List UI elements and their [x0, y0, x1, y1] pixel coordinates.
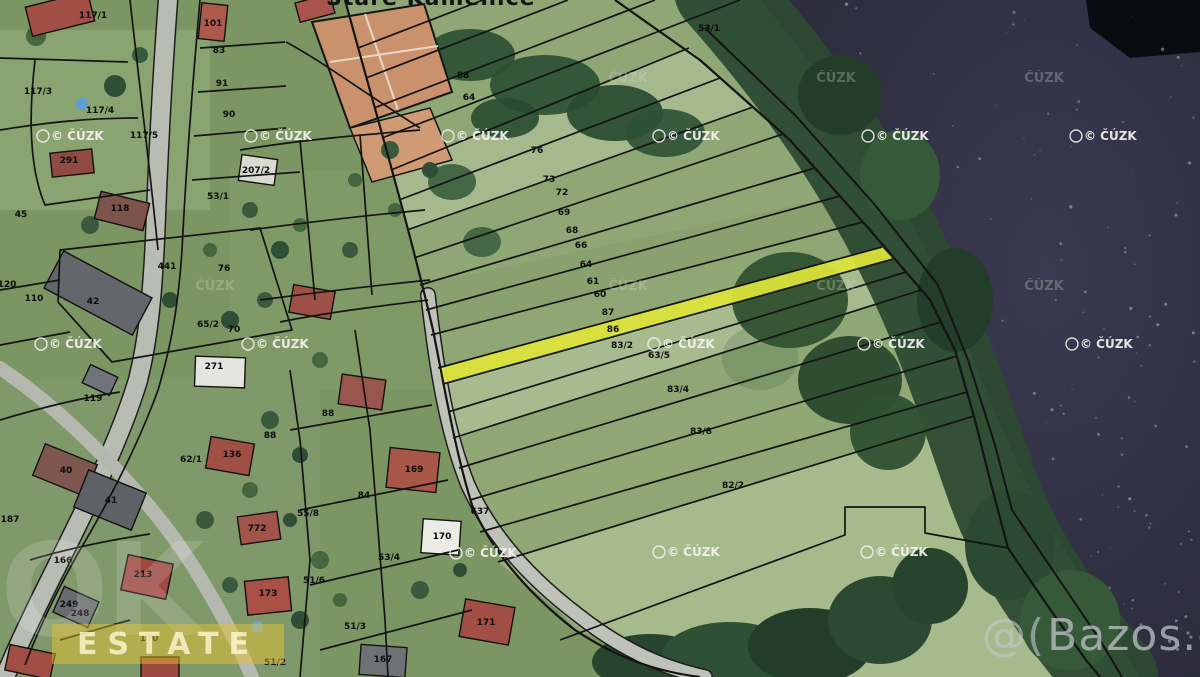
- bazos-watermark: @(Bazos.cz: [982, 610, 1200, 661]
- parcel-number-label: 772: [248, 524, 267, 534]
- parcel-number-label: 82/2: [722, 481, 744, 491]
- cuzk-faint-watermark: ČÚZK: [195, 278, 236, 294]
- svg-text:© ČÚZK: © ČÚZK: [667, 128, 720, 143]
- parcel-number-label: 70: [228, 325, 241, 335]
- agency-watermark-text: ESTATE: [77, 627, 259, 662]
- parcel-number-label: 72: [556, 188, 569, 198]
- parcel-number-label: 41: [105, 496, 118, 506]
- parcel-number-label: 117/1: [79, 11, 107, 21]
- place-label: Staré Kamenice: [326, 0, 536, 11]
- parcel-number-label: 76: [218, 264, 231, 274]
- parcel-number-label: 169: [405, 465, 424, 475]
- parcel-number-label: 73: [543, 175, 556, 185]
- parcel-number-label: 118: [111, 204, 130, 214]
- svg-text:© ČÚZK: © ČÚZK: [49, 336, 102, 351]
- cadastral-map-image[interactable]: 117/11018391117/3117/490117/5291207/2451…: [0, 0, 1200, 677]
- parcel-number-label: 441: [158, 262, 177, 272]
- bazos-watermark-text: Bazos.cz: [1047, 610, 1200, 661]
- parcel-number-label: 173: [259, 589, 278, 599]
- cuzk-faint-watermark: ČÚZK: [608, 70, 649, 86]
- parcel-number-label: 51/3: [344, 622, 366, 632]
- agency-watermark-band: ESTATE: [52, 624, 284, 664]
- parcel-number-label: 84: [358, 491, 371, 501]
- house-roof: [194, 356, 245, 388]
- parcel-number-label: 88: [457, 71, 470, 81]
- parcel-number-label: 87: [602, 308, 615, 318]
- parcel-number-label: 271: [205, 362, 224, 372]
- parcel-number-label: 170: [433, 532, 452, 542]
- parcel-number-label: 291: [60, 156, 79, 166]
- parcel-number-label: 119: [84, 394, 103, 404]
- parcel-number-label: 53/4: [378, 553, 400, 563]
- parcel-number-label: 51/6: [303, 576, 325, 586]
- parcel-number-label: 110: [25, 294, 44, 304]
- parcel-number-label: 64: [580, 260, 593, 270]
- parcel-number-label: 68: [566, 226, 579, 236]
- parcel-number-label: 90: [223, 110, 236, 120]
- svg-text:© ČÚZK: © ČÚZK: [1084, 128, 1137, 143]
- parcel-number-label: 42: [87, 297, 100, 307]
- parcel-number-label: 63/5: [648, 351, 670, 361]
- parcel-number-label: 76: [531, 146, 544, 156]
- cuzk-faint-watermark: ČÚZK: [1024, 278, 1065, 294]
- parcel-number-label: 120: [0, 280, 16, 290]
- svg-text:© ČÚZK: © ČÚZK: [662, 336, 715, 351]
- parcel-number-label: 207/2: [242, 166, 270, 176]
- parcel-number-label: 83/4: [667, 385, 689, 395]
- parcel-number-label: 64: [463, 93, 476, 103]
- parcel-number-label: 53/1: [207, 192, 229, 202]
- parcel-number-label: 136: [223, 450, 242, 460]
- svg-text:© ČÚZK: © ČÚZK: [667, 544, 720, 559]
- svg-text:© ČÚZK: © ČÚZK: [259, 128, 312, 143]
- parcel-number-label: 117/3: [24, 87, 52, 97]
- parcel-number-label: 66: [575, 241, 588, 251]
- parcel-number-label: 60: [594, 290, 607, 300]
- parcel-number-label: 117/5: [130, 131, 158, 141]
- svg-text:© ČÚZK: © ČÚZK: [1080, 336, 1133, 351]
- parcel-number-label: 61: [587, 277, 600, 287]
- parcel-number-label: 117/4: [86, 106, 114, 116]
- parcel-number-label: 91: [216, 79, 229, 89]
- svg-text:© ČÚZK: © ČÚZK: [456, 128, 509, 143]
- parcel-number-label: 171: [477, 618, 496, 628]
- cuzk-faint-watermark: ČÚZK: [816, 70, 857, 86]
- svg-text:© ČÚZK: © ČÚZK: [464, 545, 517, 560]
- parcel-number-label: 83: [213, 46, 226, 56]
- cuzk-faint-watermark: ČÚZK: [816, 278, 857, 294]
- parcel-number-label: 83/2: [611, 341, 633, 351]
- cuzk-faint-watermark: ČÚZK: [608, 278, 649, 294]
- parcel-number-label: 101: [204, 19, 223, 29]
- svg-text:© ČÚZK: © ČÚZK: [256, 336, 309, 351]
- parcel-number-label: 62/1: [180, 455, 202, 465]
- parcel-number-label: 637: [471, 507, 490, 517]
- svg-text:© ČÚZK: © ČÚZK: [876, 128, 929, 143]
- parcel-number-label: 167: [374, 655, 393, 665]
- cuzk-faint-watermark: ČÚZK: [1024, 70, 1065, 86]
- parcel-number-label: 53/1: [698, 24, 720, 34]
- parcel-number-label: 55/8: [297, 509, 319, 519]
- parcel-number-label: 69: [558, 208, 571, 218]
- parcel-number-label: 86: [607, 325, 620, 335]
- parcel-number-label: 45: [15, 210, 28, 220]
- svg-text:© ČÚZK: © ČÚZK: [51, 128, 104, 143]
- bazos-logo-icon: @(: [982, 610, 1045, 661]
- parcel-number-label: 88: [322, 409, 335, 419]
- parcel-number-label: 65/2: [197, 320, 219, 330]
- parcel-number-label: 88: [264, 431, 277, 441]
- svg-text:© ČÚZK: © ČÚZK: [875, 544, 928, 559]
- svg-text:© ČÚZK: © ČÚZK: [872, 336, 925, 351]
- parcel-number-label: 83/8: [690, 427, 712, 437]
- parcel-number-label: 40: [60, 466, 73, 476]
